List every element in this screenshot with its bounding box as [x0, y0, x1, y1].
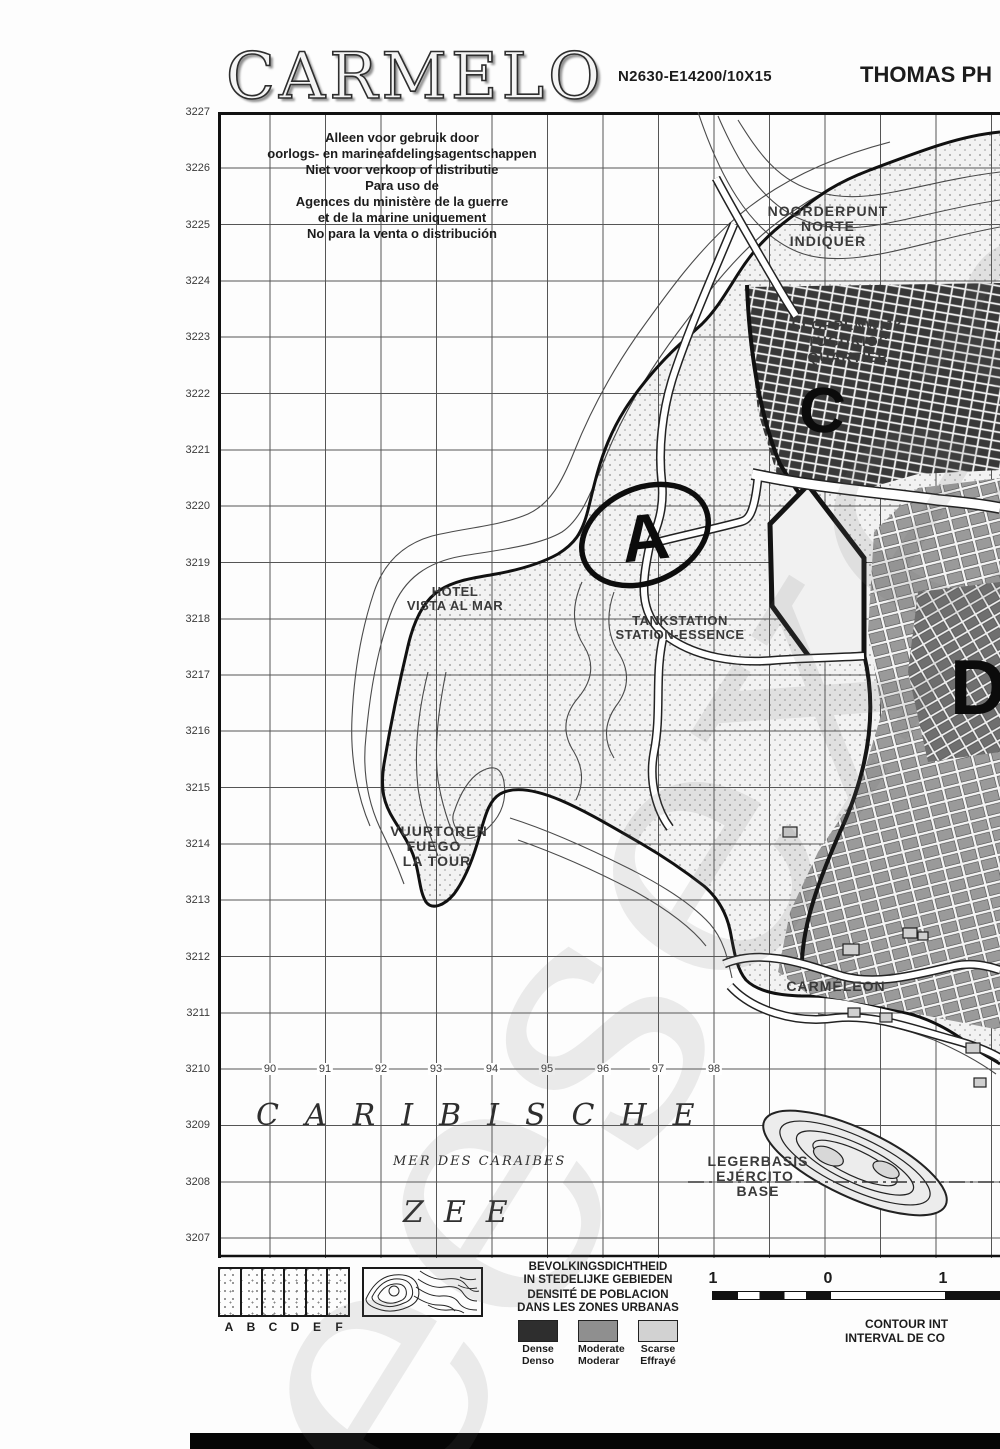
grid-northing-label: 3220: [172, 500, 210, 512]
grid-northing-label: 3227: [172, 106, 210, 118]
label-quartier: QUARTIER: [807, 349, 888, 365]
grid-northing-label: 3207: [172, 1232, 210, 1244]
label-vuurtoren: VUURTOREN: [390, 823, 487, 839]
label-fuego: FUEGO: [407, 838, 462, 854]
grid-easting-label: 97: [650, 1063, 666, 1075]
density-swatch-scarse: [638, 1320, 678, 1342]
grid-northing-label: 3225: [172, 219, 210, 231]
grid-easting-label: 93: [428, 1063, 444, 1075]
handwritten-letter-d: D: [950, 643, 1000, 731]
label-norte: NORTE: [801, 218, 855, 234]
density-label-line: Scarse: [641, 1343, 675, 1355]
density-swatch-moderate: [578, 1320, 618, 1342]
notice-line: oorlogs- en marineafdelingsagentschappen: [222, 146, 582, 162]
density-title: BEVOLKINGSDICHTHEID: [500, 1261, 696, 1274]
label-la-tour: LA TOUR: [403, 853, 471, 869]
legend-zone-boxes: [218, 1267, 350, 1317]
density-title: DENSITÉ DE POBLACION: [500, 1289, 696, 1302]
map-canvas: NOORDERPUNT NORTE INDIQUER SLOPPENWIJK T…: [218, 112, 1000, 1258]
grid-easting-label: 98: [706, 1063, 722, 1075]
notice-line: No para la venta o distribución: [222, 226, 582, 242]
grid-northing-label: 3213: [172, 894, 210, 906]
density-label-line: Dense: [522, 1343, 554, 1355]
zone-label: A: [218, 1320, 240, 1334]
grid-northing-label: 3216: [172, 725, 210, 737]
grid-northing-label: 3215: [172, 782, 210, 794]
grid-easting-label: 91: [317, 1063, 333, 1075]
contour-interval-note: CONTOUR INT: [865, 1317, 948, 1331]
grid-northing-label: 3209: [172, 1119, 210, 1131]
label-vista-al-mar: VISTA AL MAR: [407, 598, 503, 613]
label-legerbasis: LEGERBASIS: [707, 1153, 808, 1169]
legend-zone-labels: A B C D E F: [218, 1320, 350, 1334]
legend-zone-cell: [328, 1269, 348, 1315]
handwritten-letter-a: A: [618, 498, 673, 577]
scale-tick-label: 0: [824, 1270, 833, 1288]
label-base: BASE: [737, 1183, 780, 1199]
density-label: Moderate Moderar: [578, 1344, 618, 1367]
notice-line: Alleen voor gebruik door: [222, 130, 582, 146]
publisher-name: THOMAS PH: [860, 62, 992, 88]
grid-northing-label: 3208: [172, 1176, 210, 1188]
grid-northing-label: 3221: [172, 444, 210, 456]
label-hotel: HOTEL: [432, 584, 479, 599]
density-label: Scarse Effrayé: [638, 1344, 678, 1367]
zone-label: F: [328, 1320, 350, 1334]
grid-easting-label: 90: [262, 1063, 278, 1075]
page-title: CARMELO: [226, 40, 605, 114]
legend-density: BEVOLKINGSDICHTHEID IN STEDELIJKE GEBIED…: [500, 1261, 696, 1367]
density-label-line: Denso: [522, 1355, 554, 1367]
contour-interval-note: INTERVAL DE CO: [845, 1331, 945, 1345]
sheet-reference: N2630-E14200/10X15: [618, 68, 772, 85]
grid-northing-label: 3212: [172, 951, 210, 963]
label-carmeleon: CARMÉLEON: [786, 978, 885, 994]
grid-northing-label: 3218: [172, 613, 210, 625]
grid-northing-label: 3224: [172, 275, 210, 287]
density-label-line: Moderate: [578, 1343, 625, 1355]
handwritten-letter-c: C: [796, 372, 848, 448]
density-title: IN STEDELIJKE GEBIEDEN: [500, 1274, 696, 1287]
zone-label: D: [284, 1320, 306, 1334]
label-indiquer: INDIQUER: [790, 233, 866, 249]
grid-northing-label: 3222: [172, 388, 210, 400]
notice-line: Para uso de: [222, 178, 582, 194]
label-tankstation: TANKSTATION: [632, 613, 728, 628]
legend-zone-cell: [307, 1269, 329, 1315]
legend-zone-cell: [242, 1269, 264, 1315]
scale-tick-label: 1: [939, 1270, 948, 1288]
map-sheet: CARMELO N2630-E14200/10X15 THOMAS PH All…: [0, 0, 1000, 1449]
legend-contour-sample: [362, 1267, 483, 1317]
label-zee: ZEE: [402, 1195, 528, 1230]
density-label: Dense Denso: [518, 1344, 558, 1367]
grid-northing-label: 3210: [172, 1063, 210, 1075]
grid-northing-label: 3223: [172, 331, 210, 343]
notice-line: et de la marine uniquement: [222, 210, 582, 226]
label-mer-des-caraibes: MER DES CARAIBES: [392, 1154, 566, 1169]
legend-zone-cell: [220, 1269, 242, 1315]
grid-easting-label: 92: [373, 1063, 389, 1075]
scale-tick-label: 1: [709, 1270, 718, 1288]
label-ejercito: EJÉRCITO: [716, 1168, 794, 1184]
zone-label: B: [240, 1320, 262, 1334]
density-label-line: Moderar: [578, 1355, 619, 1367]
scale-bar: [712, 1291, 1000, 1300]
notice-line: Niet voor verkoop of distributie: [222, 162, 582, 178]
grid-easting-label: 95: [539, 1063, 555, 1075]
grid-northing-label: 3226: [172, 162, 210, 174]
label-noorderpunt: NOORDERPUNT: [768, 203, 889, 219]
grid-easting-label: 94: [484, 1063, 500, 1075]
label-station-essence: STATION-ESSENCE: [615, 627, 744, 642]
grid-northing-label: 3217: [172, 669, 210, 681]
zone-label: C: [262, 1320, 284, 1334]
grid-easting-label: 96: [595, 1063, 611, 1075]
bottom-black-bar: [190, 1433, 1000, 1449]
density-swatch-dense: [518, 1320, 558, 1342]
grid-northing-label: 3219: [172, 557, 210, 569]
grid-northing-label: 3211: [172, 1007, 210, 1019]
restriction-notice: Alleen voor gebruik door oorlogs- en mar…: [222, 130, 582, 242]
notice-line: Agences du ministère de la guerre: [222, 194, 582, 210]
grid-northing-label: 3214: [172, 838, 210, 850]
density-title: DANS LES ZONES URBANAS: [500, 1302, 696, 1315]
legend-zone-cell: [263, 1269, 285, 1315]
zone-label: E: [306, 1320, 328, 1334]
label-tugurios: TUGURIOS: [807, 333, 889, 349]
legend-zone-cell: [285, 1269, 307, 1315]
label-sloppenwijk: SLOPPENWIJK: [792, 317, 905, 333]
density-label-line: Effrayé: [640, 1355, 676, 1367]
label-caribische: CARIBISCHE: [256, 1098, 721, 1133]
